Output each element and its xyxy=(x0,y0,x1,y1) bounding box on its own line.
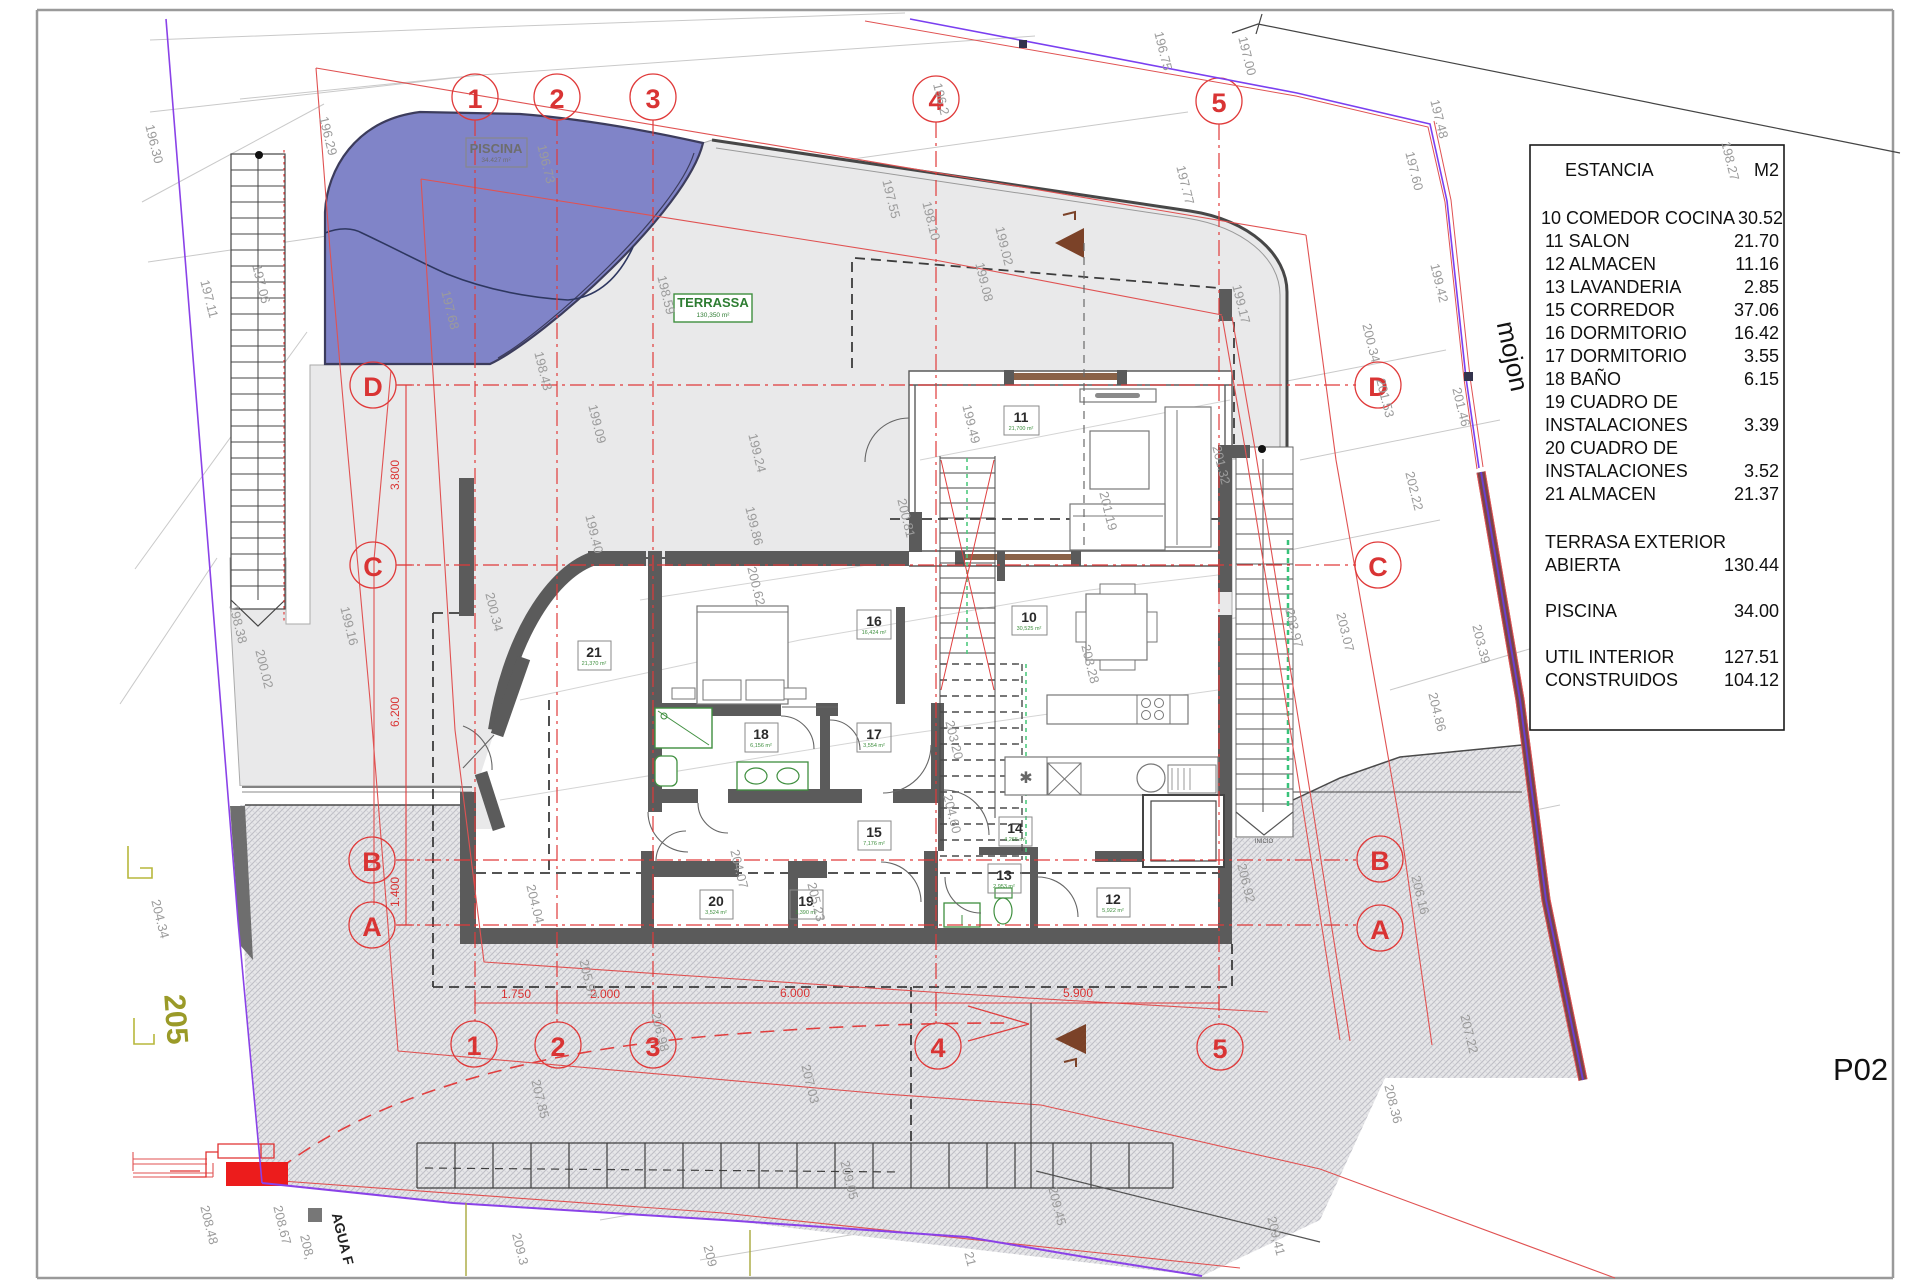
svg-text:P02: P02 xyxy=(1833,1052,1888,1087)
svg-text:34.427 m²: 34.427 m² xyxy=(481,157,511,164)
svg-text:UTIL INTERIOR: UTIL INTERIOR xyxy=(1545,647,1674,667)
svg-text:TERRASA EXTERIOR: TERRASA EXTERIOR xyxy=(1545,532,1726,552)
svg-text:205: 205 xyxy=(157,993,193,1045)
svg-text:✱: ✱ xyxy=(1019,770,1032,787)
svg-text:104.12: 104.12 xyxy=(1724,670,1779,690)
svg-text:1.750: 1.750 xyxy=(501,987,531,1001)
svg-text:130,350 m²: 130,350 m² xyxy=(697,312,731,319)
svg-text:15 CORREDOR: 15 CORREDOR xyxy=(1545,300,1675,320)
svg-text:PISCINA: PISCINA xyxy=(1545,601,1617,621)
svg-text:12: 12 xyxy=(1105,891,1121,907)
svg-text:5: 5 xyxy=(1212,1034,1227,1064)
svg-text:2.85: 2.85 xyxy=(1744,277,1779,297)
svg-text:TERRASSA: TERRASSA xyxy=(677,295,749,310)
svg-text:11: 11 xyxy=(1014,409,1029,425)
svg-text:2,953 m²: 2,953 m² xyxy=(993,884,1015,890)
svg-text:ESTANCIA: ESTANCIA xyxy=(1565,160,1654,180)
svg-text:2: 2 xyxy=(549,84,564,114)
svg-text:11 SALON: 11 SALON xyxy=(1545,231,1630,251)
svg-text:12 ALMACEN: 12 ALMACEN xyxy=(1545,254,1656,274)
svg-text:C: C xyxy=(1368,552,1388,582)
svg-text:11.16: 11.16 xyxy=(1735,254,1779,274)
svg-text:A: A xyxy=(1370,915,1390,945)
svg-text:21,700 m²: 21,700 m² xyxy=(1009,426,1034,432)
svg-text:37.06: 37.06 xyxy=(1734,300,1779,320)
svg-text:21.70: 21.70 xyxy=(1734,231,1779,251)
svg-text:17 DORMITORIO: 17 DORMITORIO xyxy=(1545,346,1687,366)
svg-text:7,176 m²: 7,176 m² xyxy=(863,841,885,847)
svg-text:30.52: 30.52 xyxy=(1738,208,1783,228)
svg-text:6.15: 6.15 xyxy=(1744,369,1779,389)
svg-text:21,370 m²: 21,370 m² xyxy=(582,661,607,667)
svg-text:130.44: 130.44 xyxy=(1724,555,1779,575)
svg-text:4,265 m²: 4,265 m² xyxy=(1004,837,1026,843)
svg-text:3: 3 xyxy=(645,84,660,114)
svg-text:ABIERTA: ABIERTA xyxy=(1545,555,1620,575)
svg-text:M2: M2 xyxy=(1754,160,1779,180)
svg-text:1.400: 1.400 xyxy=(388,877,402,907)
svg-text:14: 14 xyxy=(1007,820,1023,836)
svg-text:4: 4 xyxy=(930,1033,945,1063)
svg-text:3.52: 3.52 xyxy=(1744,461,1779,481)
svg-text:5,922 m²: 5,922 m² xyxy=(1102,908,1124,914)
svg-text:6.000: 6.000 xyxy=(780,986,810,1000)
svg-text:13 LAVANDERIA: 13 LAVANDERIA xyxy=(1545,277,1681,297)
svg-text:1: 1 xyxy=(466,1031,481,1061)
svg-text:INSTALACIONES: INSTALACIONES xyxy=(1545,461,1688,481)
svg-text:CONSTRUIDOS: CONSTRUIDOS xyxy=(1545,670,1678,690)
svg-text:3,554 m²: 3,554 m² xyxy=(863,743,885,749)
svg-text:127.51: 127.51 xyxy=(1724,647,1779,667)
svg-text:30,525 m²: 30,525 m² xyxy=(1017,626,1042,632)
svg-text:PISCINA: PISCINA xyxy=(470,141,523,156)
svg-text:13: 13 xyxy=(996,867,1012,883)
svg-text:16,424 m²: 16,424 m² xyxy=(862,630,887,636)
svg-text:16: 16 xyxy=(866,613,882,629)
svg-text:6,156 m²: 6,156 m² xyxy=(750,743,772,749)
svg-text:15: 15 xyxy=(866,824,882,840)
svg-text:3,524 m²: 3,524 m² xyxy=(705,910,727,916)
svg-text:B: B xyxy=(362,847,382,877)
svg-text:3.39: 3.39 xyxy=(1744,415,1779,435)
svg-text:21.37: 21.37 xyxy=(1734,484,1779,504)
svg-text:10: 10 xyxy=(1021,609,1037,625)
svg-text:C: C xyxy=(363,552,383,582)
svg-text:1: 1 xyxy=(467,84,482,114)
svg-text:18 BAÑO: 18 BAÑO xyxy=(1545,368,1621,389)
svg-text:INICIO: INICIO xyxy=(1255,839,1274,845)
svg-text:20: 20 xyxy=(708,893,724,909)
svg-text:21 ALMACEN: 21 ALMACEN xyxy=(1545,484,1656,504)
svg-text:34.00: 34.00 xyxy=(1734,601,1779,621)
svg-text:19 CUADRO DE: 19 CUADRO DE xyxy=(1545,392,1678,412)
svg-text:D: D xyxy=(363,372,383,402)
svg-text:5.900: 5.900 xyxy=(1063,986,1093,1000)
svg-text:3.55: 3.55 xyxy=(1744,346,1779,366)
svg-text:B: B xyxy=(1370,846,1390,876)
svg-text:5: 5 xyxy=(1211,88,1226,118)
svg-text:16 DORMITORIO: 16 DORMITORIO xyxy=(1545,323,1687,343)
svg-text:21: 21 xyxy=(586,644,602,660)
svg-text:16.42: 16.42 xyxy=(1734,323,1779,343)
svg-text:2: 2 xyxy=(550,1032,565,1062)
svg-text:6.200: 6.200 xyxy=(388,697,402,727)
svg-text:18: 18 xyxy=(753,726,769,742)
svg-text:A: A xyxy=(362,912,382,942)
svg-text:17: 17 xyxy=(866,726,882,742)
svg-text:INSTALACIONES: INSTALACIONES xyxy=(1545,415,1688,435)
svg-text:10 COMEDOR COCINA: 10 COMEDOR COCINA xyxy=(1541,208,1735,228)
svg-text:3.800: 3.800 xyxy=(388,460,402,490)
svg-text:20 CUADRO DE: 20 CUADRO DE xyxy=(1545,438,1678,458)
